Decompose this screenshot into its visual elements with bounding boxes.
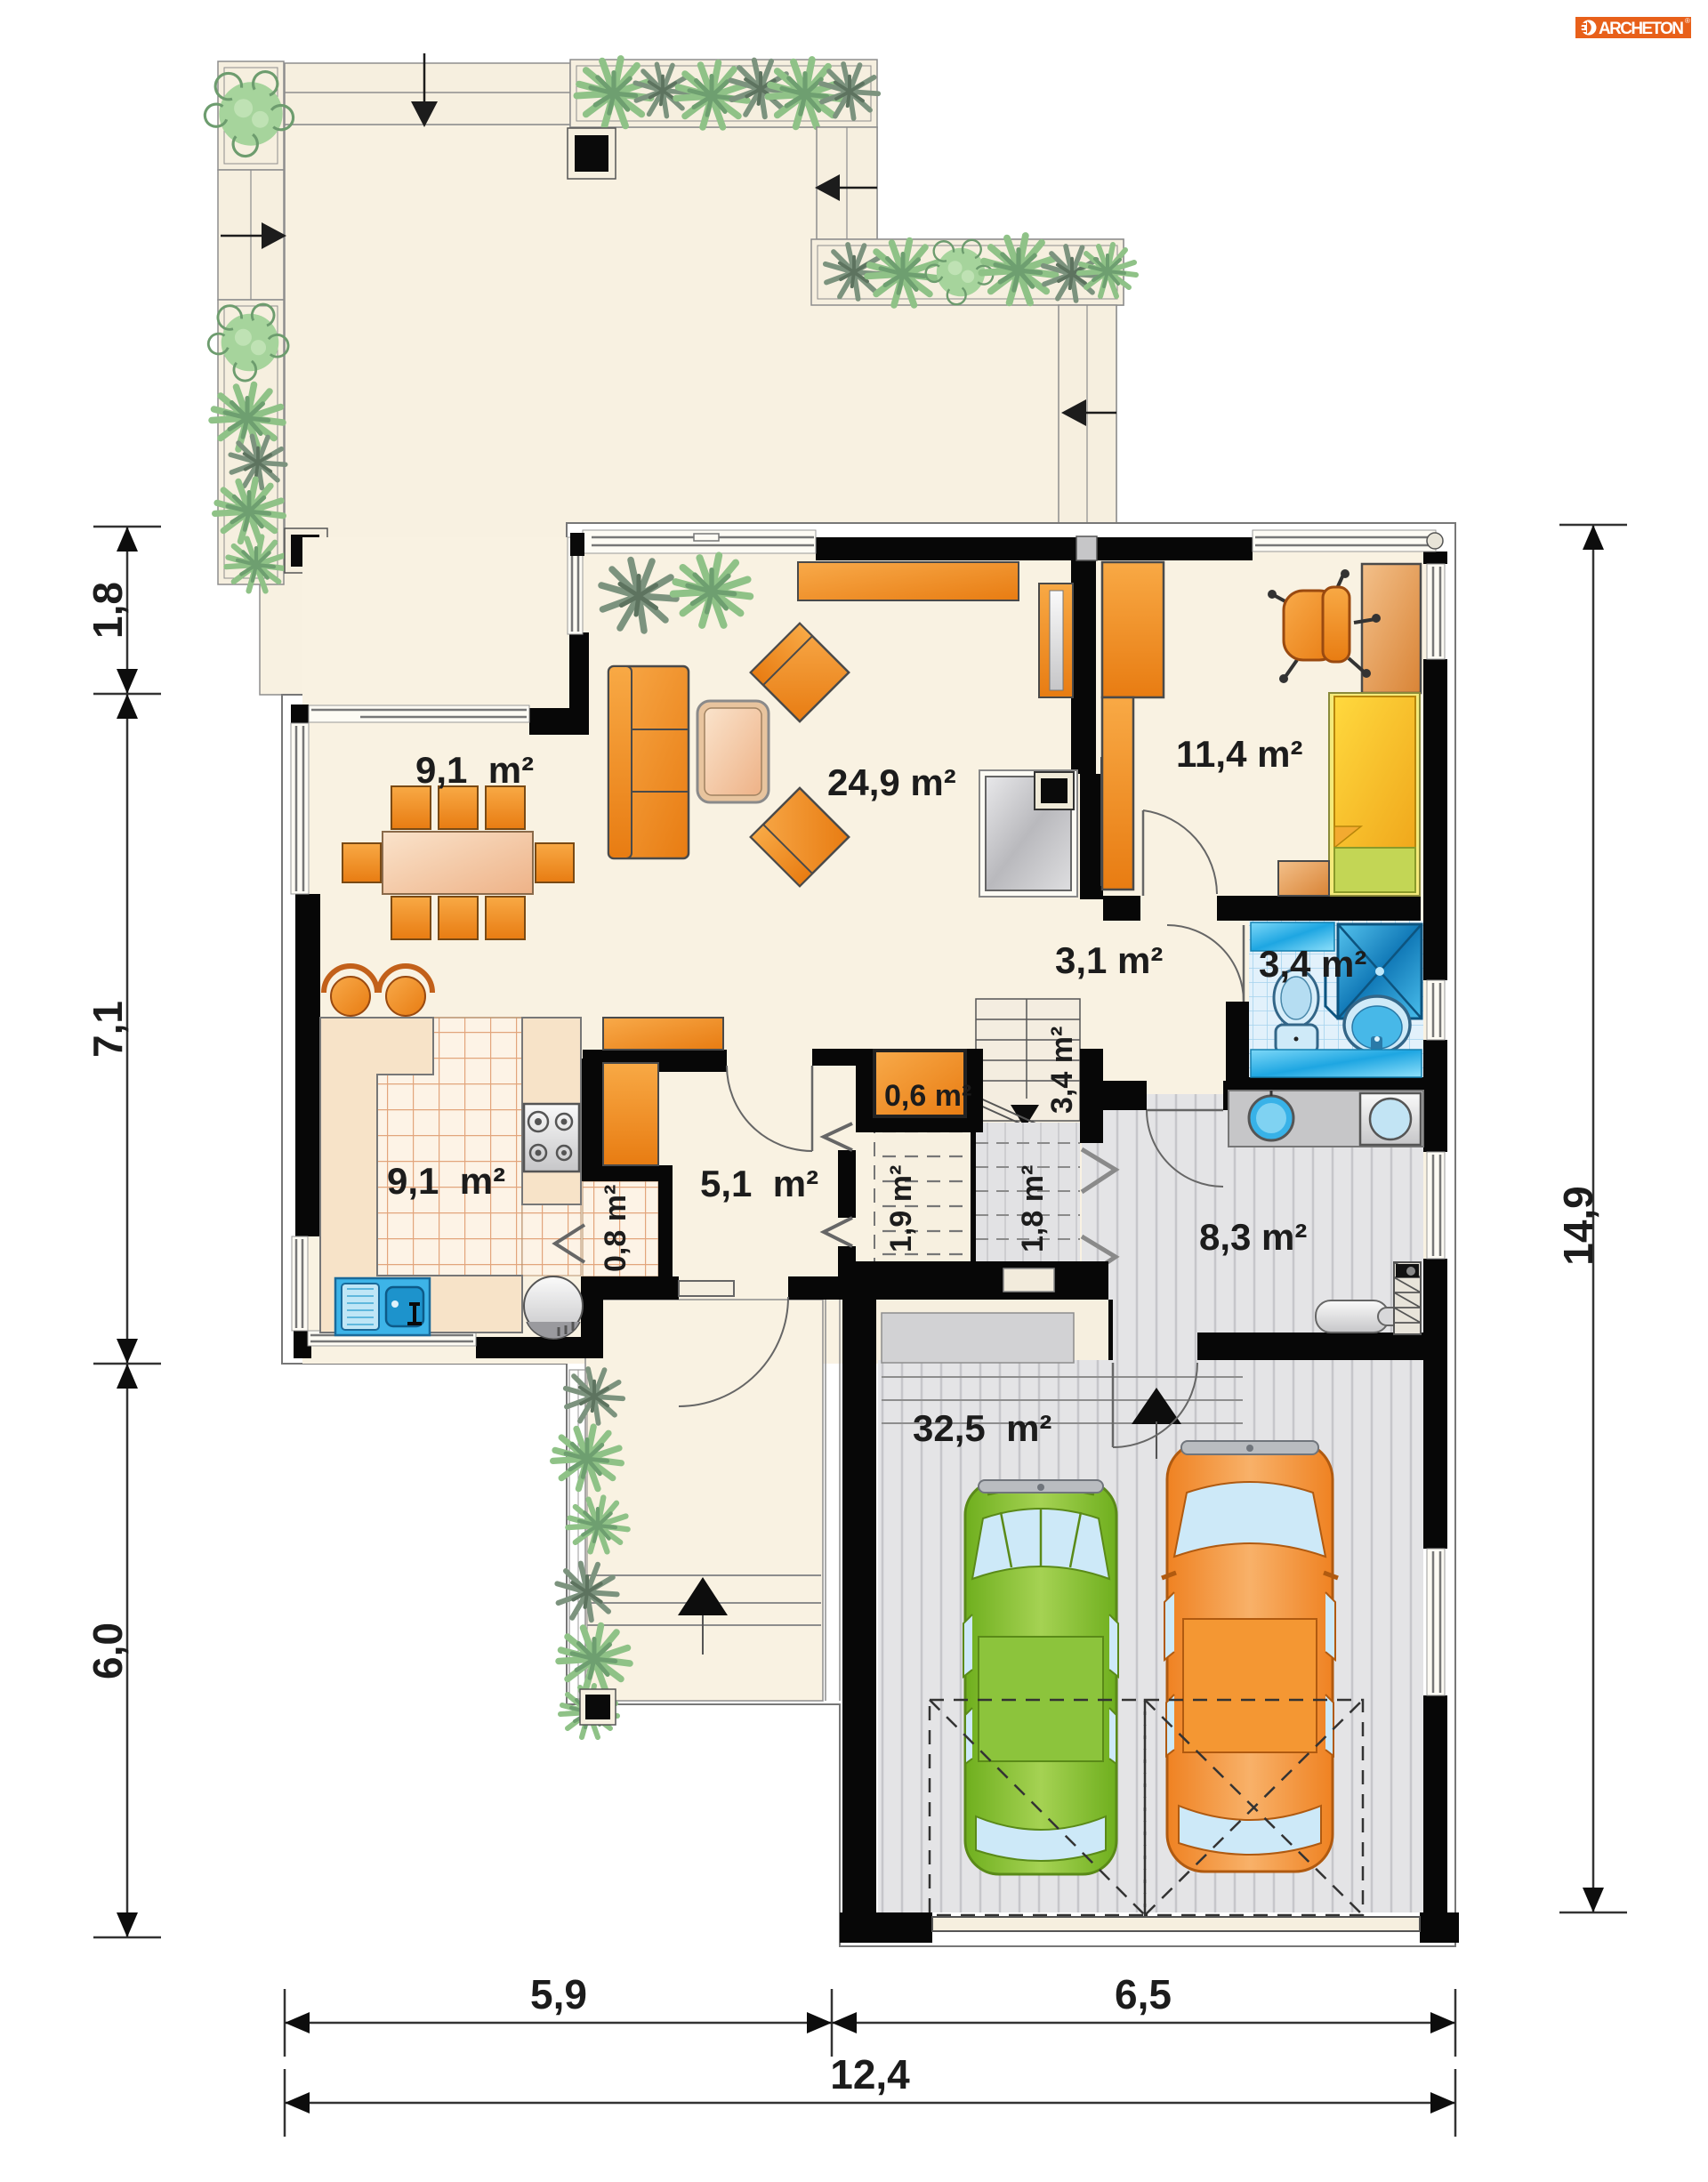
- svg-text:0,8 m²: 0,8 m²: [599, 1185, 632, 1272]
- svg-text:1,8: 1,8: [85, 582, 131, 639]
- svg-text:5,9: 5,9: [530, 1971, 587, 2017]
- svg-text:6,5: 6,5: [1115, 1971, 1172, 2017]
- svg-text:9,1 m²: 9,1 m²: [387, 1160, 505, 1202]
- svg-text:6,0: 6,0: [85, 1622, 131, 1679]
- svg-text:14,9: 14,9: [1555, 1186, 1601, 1266]
- svg-text:®: ®: [1685, 17, 1690, 25]
- svg-text:0,6 m²: 0,6 m²: [884, 1079, 971, 1113]
- svg-text:1,8 m²: 1,8 m²: [1016, 1165, 1050, 1252]
- svg-text:7,1: 7,1: [85, 1001, 131, 1058]
- svg-text:5,1 m²: 5,1 m²: [700, 1163, 818, 1204]
- svg-text:1,9 m²: 1,9 m²: [884, 1165, 918, 1252]
- svg-text:8,3 m²: 8,3 m²: [1199, 1216, 1307, 1258]
- svg-text:11,4 m²: 11,4 m²: [1176, 733, 1302, 775]
- svg-text:3,4 m²: 3,4 m²: [1045, 1027, 1079, 1114]
- svg-text:ARCHETON: ARCHETON: [1599, 20, 1684, 38]
- svg-text:9,1 m²: 9,1 m²: [415, 749, 534, 791]
- svg-text:24,9 m²: 24,9 m²: [827, 761, 956, 803]
- svg-text:3,4 m²: 3,4 m²: [1259, 943, 1366, 985]
- svg-text:3,1 m²: 3,1 m²: [1055, 939, 1163, 981]
- svg-text:32,5 m²: 32,5 m²: [913, 1407, 1051, 1449]
- svg-text:12,4: 12,4: [830, 2051, 910, 2097]
